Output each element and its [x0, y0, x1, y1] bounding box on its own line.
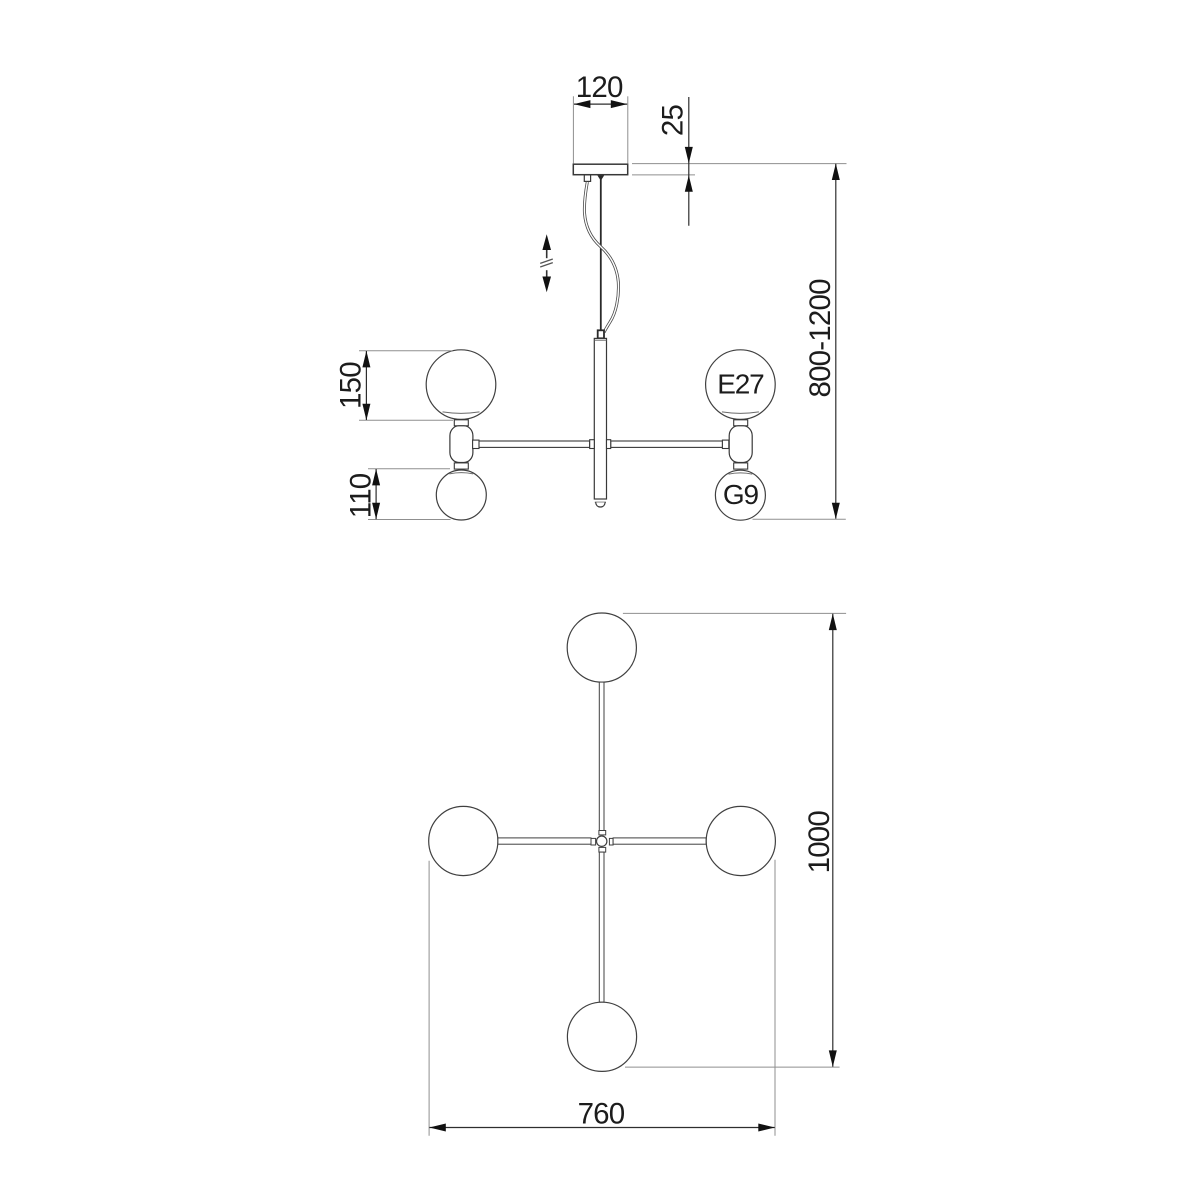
svg-text:110: 110	[344, 473, 377, 518]
svg-text:120: 120	[576, 71, 623, 104]
svg-text:150: 150	[335, 362, 368, 409]
svg-text:G9: G9	[723, 479, 759, 510]
svg-text:E27: E27	[717, 369, 764, 400]
svg-text:800-1200: 800-1200	[804, 279, 837, 398]
svg-text:1000: 1000	[803, 811, 836, 874]
svg-text:25: 25	[657, 105, 690, 137]
svg-text:760: 760	[578, 1097, 625, 1130]
